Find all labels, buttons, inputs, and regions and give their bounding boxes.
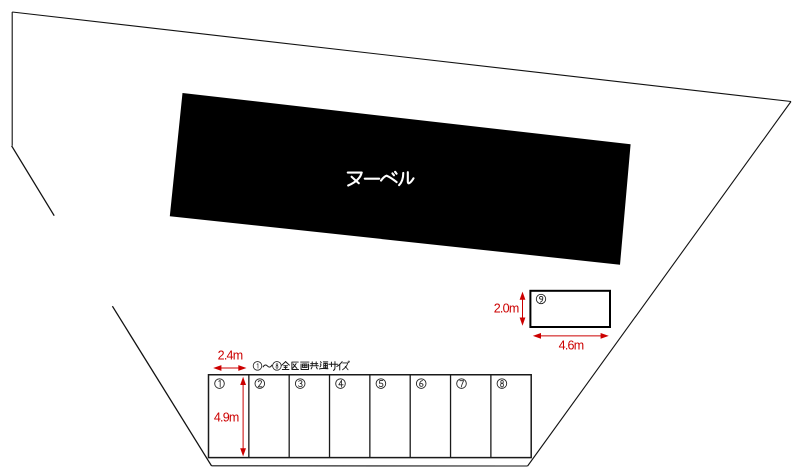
svg-text:2.4m: 2.4m xyxy=(218,349,244,363)
svg-text:4.9m: 4.9m xyxy=(214,411,240,425)
svg-text:4.6m: 4.6m xyxy=(559,339,585,353)
svg-text:2.0m: 2.0m xyxy=(494,301,520,315)
